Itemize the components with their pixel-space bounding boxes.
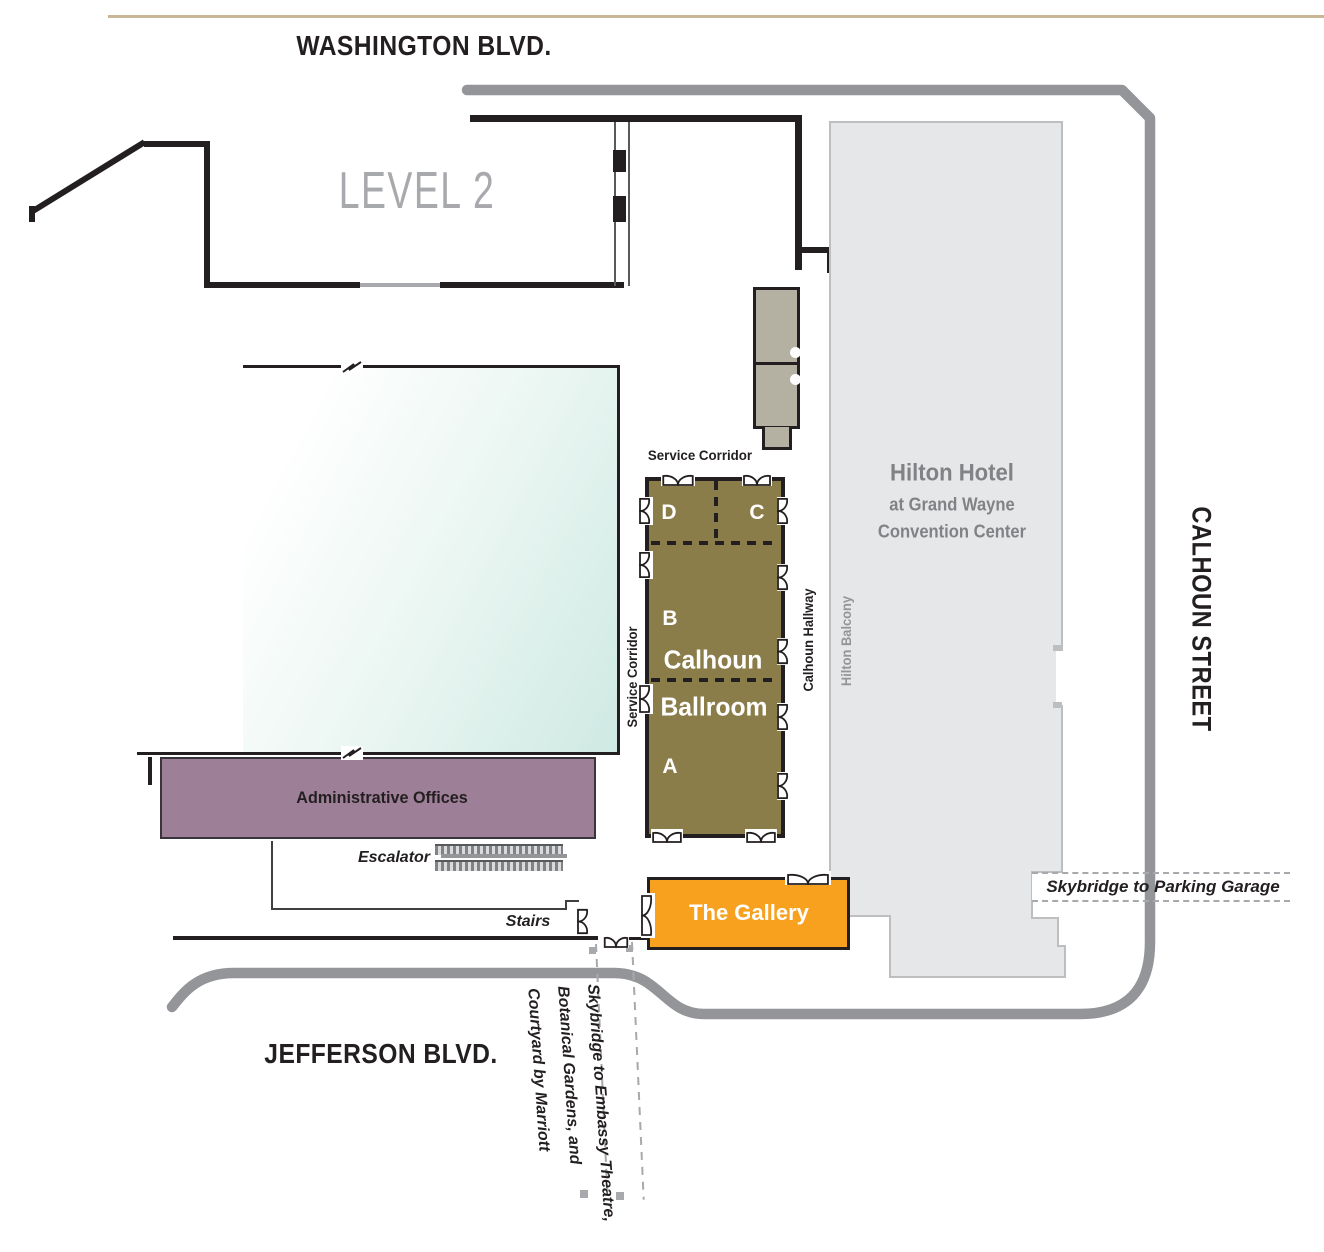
ballroom-section-c: C xyxy=(749,501,764,525)
double-door-icon xyxy=(785,871,831,885)
escalator-label: Escalator xyxy=(358,849,430,867)
ballroom-section-b: B xyxy=(662,607,677,631)
double-door-icon xyxy=(777,638,791,665)
double-door-icon xyxy=(639,497,653,525)
ballroom-name-line1: Calhoun xyxy=(664,645,763,676)
gallery-label: The Gallery xyxy=(689,900,809,926)
service-unit-notch xyxy=(790,347,801,358)
escalator-icon xyxy=(441,854,567,858)
lobby-line xyxy=(271,841,273,909)
ballroom-divider xyxy=(651,541,779,545)
admin-offices-label: Administrative Offices xyxy=(296,788,467,808)
double-door-icon xyxy=(745,829,777,843)
double-door-icon xyxy=(777,772,791,800)
ballroom-name-line2: Ballroom xyxy=(660,692,767,723)
service-unit-foot xyxy=(762,427,792,450)
skybridge-south-label: Skybridge to Embassy Theatre, Botanical … xyxy=(517,983,623,1227)
level2-floorplan: WASHINGTON BLVD. JEFFERSON BLVD. CALHOUN… xyxy=(0,0,1324,1252)
double-door-icon xyxy=(641,893,655,938)
skybridge-parking-label: Skybridge to Parking Garage xyxy=(1046,877,1279,897)
double-door-icon xyxy=(603,934,629,948)
wall xyxy=(753,362,800,365)
lobby-line xyxy=(565,900,579,902)
wall-south xyxy=(173,936,598,940)
double-door-icon xyxy=(639,684,653,714)
service-unit-notch xyxy=(790,374,801,385)
service-corridor-left-label: Service Corridor xyxy=(624,627,640,728)
service-corridor-top-label: Service Corridor xyxy=(648,447,752,463)
service-unit xyxy=(753,287,800,429)
ballroom-divider xyxy=(714,481,718,541)
stairs-label: Stairs xyxy=(506,913,550,931)
double-door-icon xyxy=(639,551,653,579)
calhoun-hallway-label: Calhoun Hallway xyxy=(800,588,816,691)
double-door-icon xyxy=(777,497,791,525)
double-door-icon xyxy=(742,472,772,486)
double-door-icon xyxy=(777,703,791,731)
escalator-icon xyxy=(435,860,563,871)
double-door-icon xyxy=(577,908,591,935)
lobby-line xyxy=(271,908,567,910)
wall-break-icon xyxy=(341,746,363,760)
ballroom-section-d: D xyxy=(661,501,676,525)
skybridge-parking-dash xyxy=(1032,872,1290,874)
wall-break-icon xyxy=(341,360,363,374)
skybridge-parking-dash xyxy=(1032,900,1290,902)
double-door-icon xyxy=(777,564,791,591)
ballroom-divider xyxy=(651,678,779,682)
double-door-icon xyxy=(661,472,695,486)
ballroom-section-a: A xyxy=(662,755,677,779)
double-door-icon xyxy=(651,829,683,843)
